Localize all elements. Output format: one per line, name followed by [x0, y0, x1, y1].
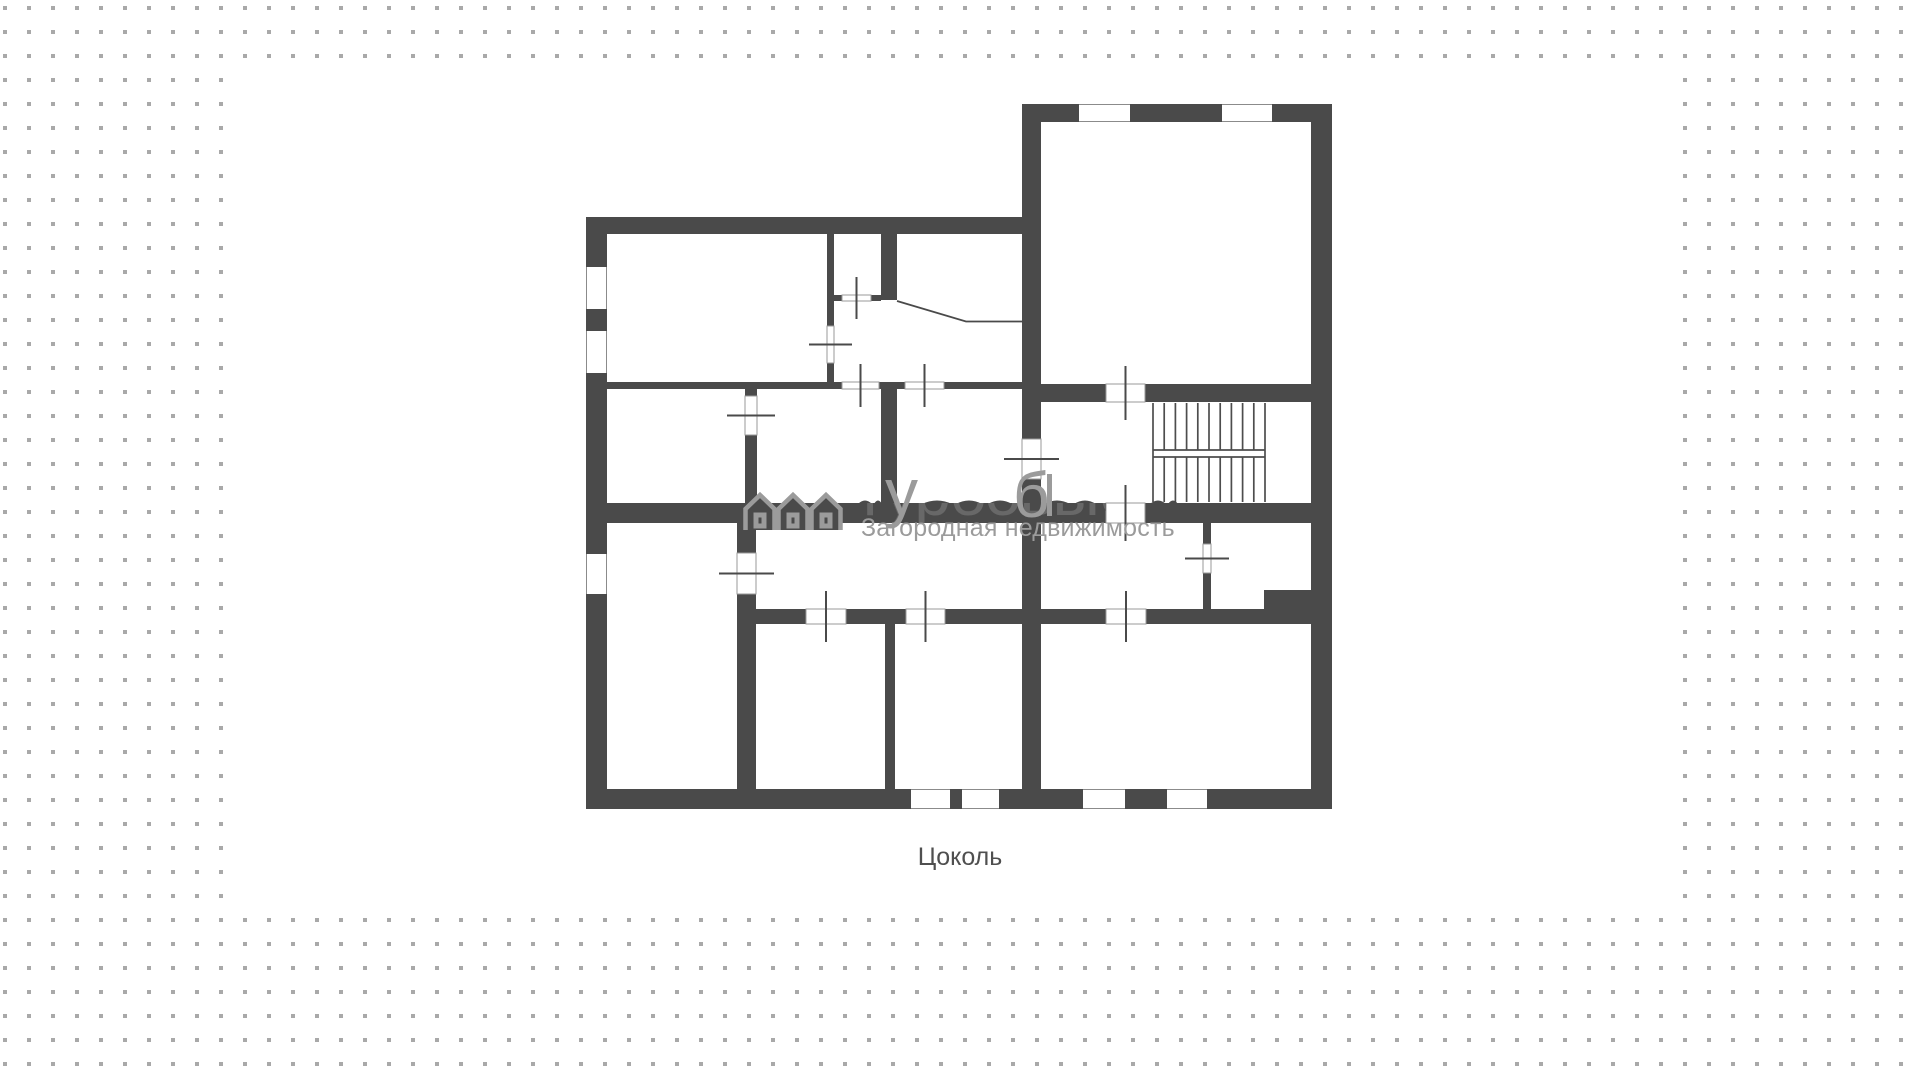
- svg-text:Цоколь: Цоколь: [918, 843, 1003, 871]
- svg-text:Загородная недвижимость: Загородная недвижимость: [861, 514, 1175, 542]
